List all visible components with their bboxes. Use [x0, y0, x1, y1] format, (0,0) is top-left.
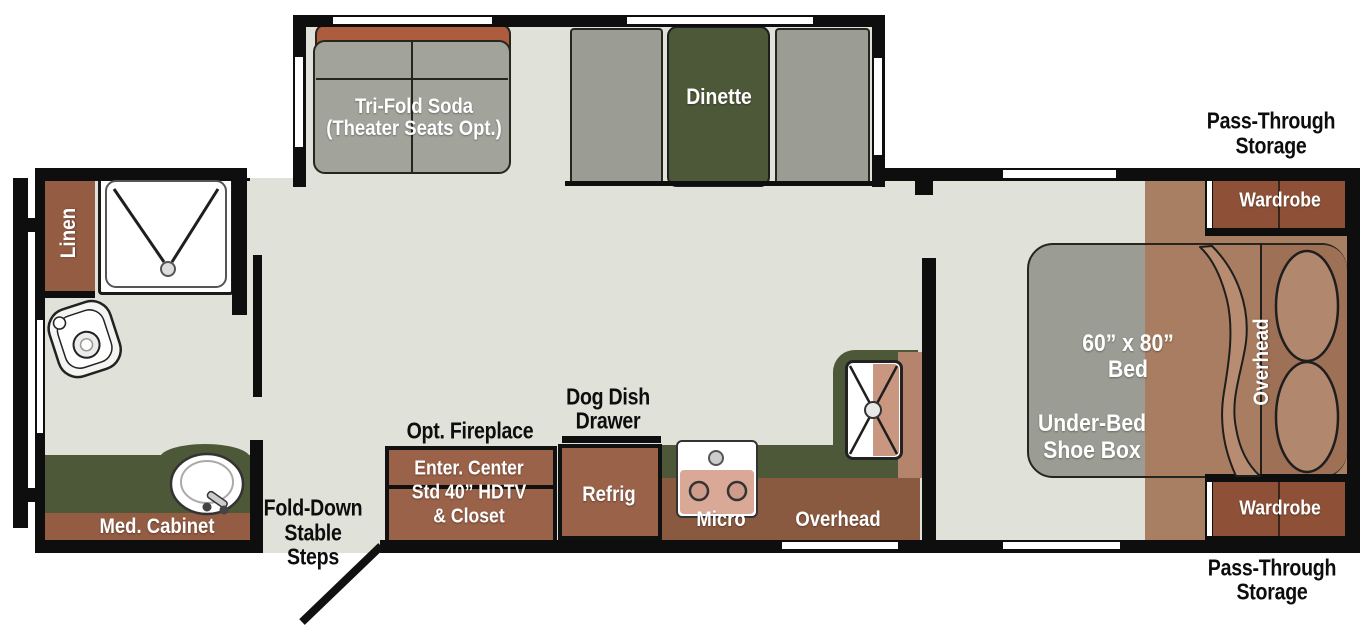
- linen-cabinet-base: [45, 291, 95, 298]
- wardrobe-top-label: Wardrobe: [1239, 190, 1320, 213]
- wardrobe-bottom-door-gap: [1207, 482, 1212, 536]
- front-cap-tie-top: [28, 218, 35, 232]
- wall-shower-side: [232, 170, 247, 315]
- wardrobe-top-door-gap: [1207, 176, 1212, 228]
- bed-overhead-label: Overhead: [1250, 318, 1274, 405]
- wall-med-cabinet-side: [250, 440, 263, 550]
- refrig-label: Refrig: [582, 483, 635, 507]
- dog-dish-drawer-line: [562, 436, 661, 443]
- med-cabinet-label: Med. Cabinet: [99, 515, 214, 539]
- dog-dish-label-line1: Dog Dish: [566, 384, 650, 411]
- window-top-bath: [247, 166, 293, 178]
- enter-center-label-line2: Std 40” HDTV: [412, 482, 526, 505]
- enter-center-label-line3: & Closet: [433, 506, 504, 529]
- shower: [98, 173, 234, 295]
- bed-size-label-line2: Bed: [1108, 356, 1148, 384]
- dog-dish-label-line2: Drawer: [576, 408, 641, 435]
- dinette-bench-right: [775, 28, 870, 185]
- wall-bedroom-stub: [915, 181, 933, 195]
- under-bed-label-line1: Under-Bed: [1038, 410, 1146, 438]
- wall-bottom-left: [35, 540, 263, 553]
- wall-top-left: [35, 168, 250, 181]
- pass-through-top-label-line2: Storage: [1235, 133, 1306, 160]
- wall-right: [1347, 168, 1360, 553]
- window-slideout-left: [295, 57, 303, 147]
- window-slideout-right: [874, 58, 882, 155]
- dinette-label: Dinette: [686, 84, 752, 110]
- sofa-label-line1: Tri-Fold Soda: [355, 95, 473, 119]
- window-bottom-bedroom: [1003, 542, 1120, 549]
- kitchen-sink-shade: [873, 364, 899, 456]
- floorplan: Tri-Fold Soda (Theater Seats Opt.) Dinet…: [0, 0, 1366, 637]
- window-left-bath: [37, 320, 43, 433]
- front-cap: [13, 178, 28, 528]
- under-bed-label-line2: Shoe Box: [1043, 437, 1140, 465]
- enter-center-label-line1: Enter. Center: [414, 458, 524, 481]
- steps-label-line1: Fold-Down: [264, 495, 363, 522]
- bed-pillow-zone: [1262, 245, 1347, 476]
- window-bottom-kitchen: [782, 542, 898, 549]
- dinette-bench-left: [570, 28, 663, 185]
- bed-size-label-line1: 60” x 80”: [1082, 330, 1174, 358]
- med-counter-hump: [160, 444, 250, 472]
- pass-through-bottom-label-line1: Pass-Through: [1208, 555, 1336, 582]
- sofa-label-line2: (Theater Seats Opt.): [326, 117, 502, 141]
- sofa-divider-h: [316, 78, 508, 80]
- steps-label-line2: Stable: [284, 520, 341, 547]
- dinette-base-line: [565, 181, 872, 186]
- micro-label: Micro: [696, 508, 745, 532]
- pass-through-top-label-line1: Pass-Through: [1207, 108, 1335, 135]
- window-top-right: [1003, 170, 1116, 178]
- window-slideout-dinette: [627, 17, 813, 24]
- wall-top-right: [885, 168, 1347, 181]
- linen-label: Linen: [57, 208, 81, 258]
- window-slideout-sofa: [333, 17, 492, 24]
- wall-bath-pocket: [253, 255, 262, 397]
- wardrobe-bottom-label: Wardrobe: [1239, 498, 1320, 521]
- wall-bedroom-partition: [922, 258, 936, 543]
- front-cap-tie-bottom: [28, 488, 35, 502]
- opt-fireplace-label: Opt. Fireplace: [407, 418, 534, 445]
- steps-label-line3: Steps: [287, 544, 339, 571]
- kitchen-overhead-label: Overhead: [795, 508, 880, 532]
- pass-through-bottom-label-line2: Storage: [1236, 579, 1307, 606]
